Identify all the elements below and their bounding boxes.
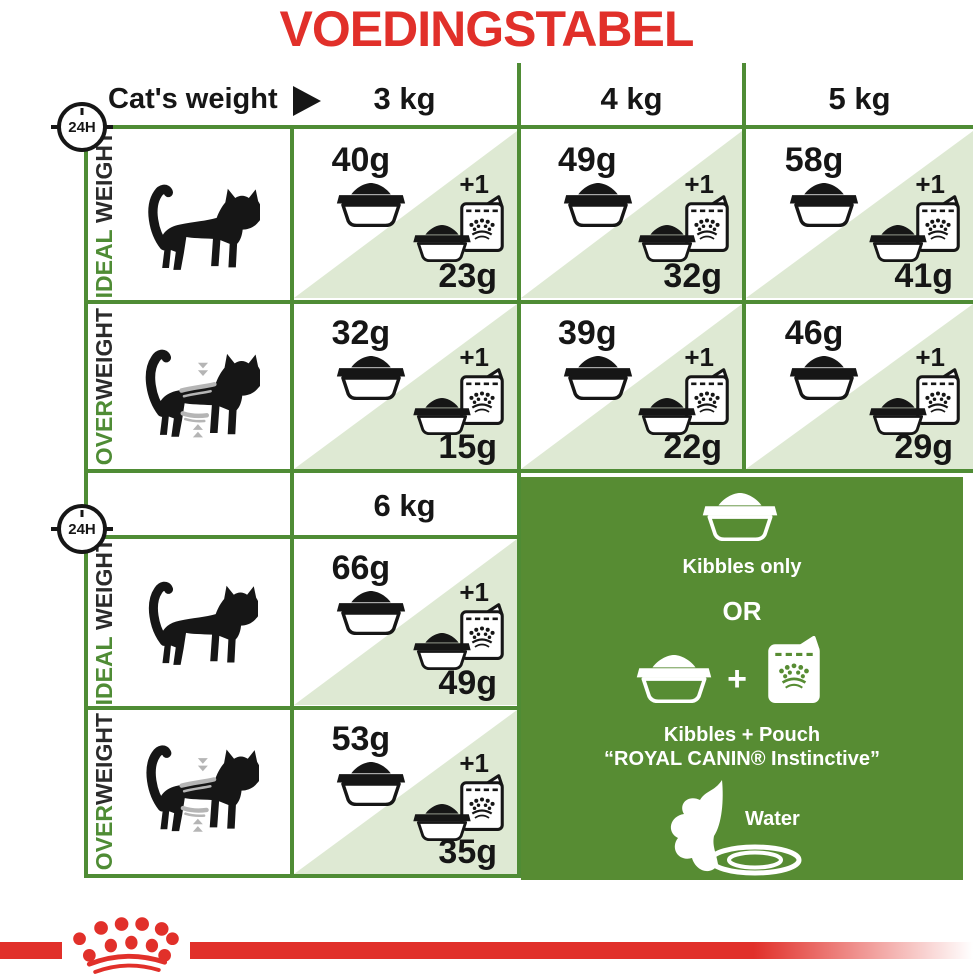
badge-label: 24H [68, 521, 96, 538]
pouch-amount: 22g [663, 428, 722, 467]
clock-24h-badge: 24H [57, 102, 107, 152]
pouch-amount: 41g [894, 257, 953, 296]
kibbles-amount: 53g [294, 720, 428, 759]
tick-icon [51, 527, 59, 531]
royal-canin-crown-logo [60, 917, 192, 978]
water-label: Water [745, 808, 800, 831]
bowl-icon [785, 183, 863, 227]
bowl-icon [332, 762, 410, 806]
cell-over-3kg: 32g +1 15g [294, 304, 517, 469]
brand-bar-right [190, 942, 973, 959]
column-4kg: 4 kg [521, 81, 742, 117]
tick-icon [105, 125, 113, 129]
pouch-amount: 32g [663, 257, 722, 296]
row-label-ideal-weight: IDEAL WEIGHT [84, 131, 124, 299]
plus-icon: + [722, 660, 752, 699]
label-weight: WEIGHT [91, 308, 117, 400]
bowl-icon [785, 356, 863, 400]
cell-ideal-4kg: 49g +1 32g [521, 131, 742, 298]
row-label-ideal-weight: IDEAL WEIGHT [84, 539, 124, 705]
bowl-icon [332, 591, 410, 635]
column-3kg: 3 kg [292, 81, 517, 117]
row-label-overweight: OVERWEIGHT [84, 710, 124, 874]
kibbles-amount: 58g [746, 141, 882, 180]
column-6kg: 6 kg [292, 488, 517, 524]
kibbles-amount: 66g [294, 549, 428, 588]
pouch-amount: 49g [438, 664, 497, 703]
cat-ideal-icon [130, 162, 260, 296]
label-ideal: IDEAL [91, 230, 117, 299]
kibbles-amount: 40g [294, 141, 428, 180]
label-ideal: IDEAL [91, 637, 117, 706]
kibbles-amount: 46g [746, 314, 882, 353]
pouch-amount: 29g [894, 428, 953, 467]
pouch-amount: 35g [438, 833, 497, 872]
cell-over-4kg: 39g +1 22g [521, 304, 742, 469]
cell-ideal-5kg: 58g +1 41g [746, 131, 973, 298]
header-label: Cat's weight [108, 83, 278, 116]
bowl-icon [332, 183, 410, 227]
bowl-icon [559, 183, 637, 227]
page-title: VOEDINGSTABEL [0, 0, 973, 58]
badge-label: 24H [68, 119, 96, 136]
label-over: OVER [91, 805, 117, 870]
kibbles-pouch-label: Kibbles + Pouch [521, 724, 963, 747]
tick-icon [51, 125, 59, 129]
bowl-icon [630, 655, 718, 703]
pouch-name-label: “ROYAL CANIN® Instinctive” [521, 748, 963, 771]
grid-line-h6 [84, 874, 521, 878]
cat-ideal-icon [131, 558, 258, 692]
grid-line-h1 [100, 125, 973, 129]
cat-overweight-icon [127, 326, 260, 464]
pouch-amount: 15g [438, 428, 497, 467]
cat-overweight-icon [128, 722, 259, 858]
label-weight: WEIGHT [91, 538, 117, 636]
brand-bar-left [0, 942, 62, 959]
cell-ideal-3kg: 40g +1 23g [294, 131, 517, 298]
cell-over-5kg: 46g +1 29g [746, 304, 973, 469]
cell-over-6kg: 53g +1 35g [294, 710, 517, 874]
bowl-icon [697, 493, 783, 541]
label-over: OVER [91, 400, 117, 465]
kibbles-amount: 49g [521, 141, 654, 180]
or-label: OR [521, 596, 963, 627]
label-weight: WEIGHT [91, 713, 117, 805]
bowl-icon [559, 356, 637, 400]
row-label-overweight: OVERWEIGHT [84, 304, 124, 469]
cell-ideal-6kg: 66g +1 49g [294, 539, 517, 705]
pouch-icon [768, 636, 820, 704]
grid-line-h3 [84, 469, 973, 473]
column-5kg: 5 kg [746, 81, 973, 117]
bowl-icon [332, 356, 410, 400]
feeding-table-page: { "title": "VOEDINGSTABEL", "header": { … [0, 0, 973, 980]
clock-24h-badge: 24H [57, 504, 107, 554]
kibbles-amount: 32g [294, 314, 428, 353]
pouch-amount: 23g [438, 257, 497, 296]
kibbles-amount: 39g [521, 314, 654, 353]
kibbles-only-label: Kibbles only [521, 556, 963, 579]
tick-icon [105, 527, 113, 531]
